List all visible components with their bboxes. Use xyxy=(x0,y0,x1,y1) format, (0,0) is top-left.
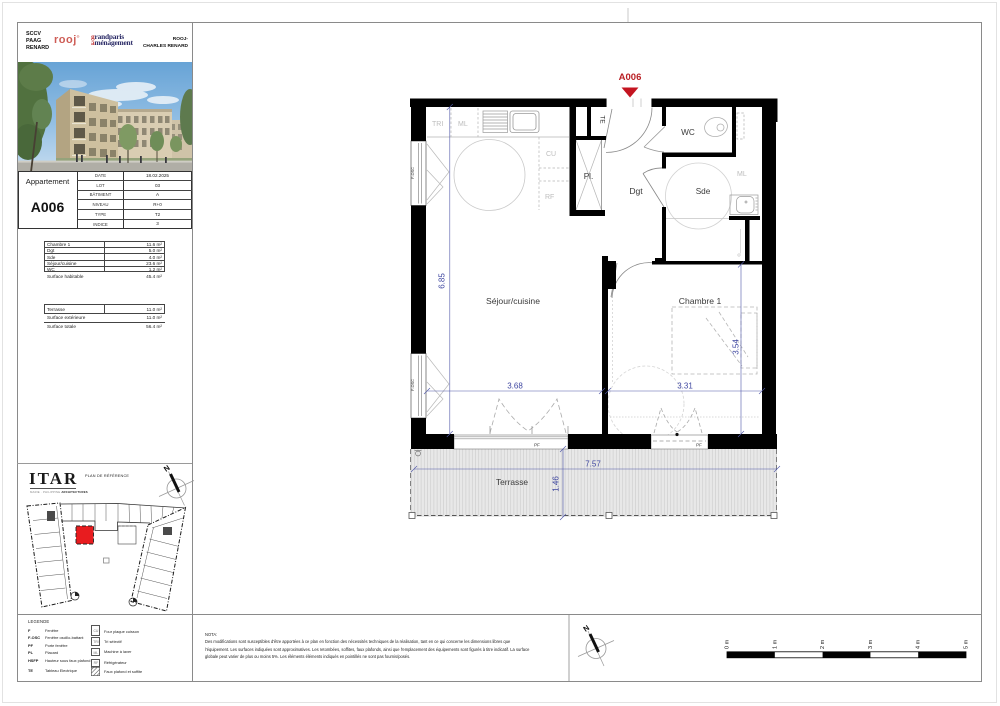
svg-text:CU: CU xyxy=(546,151,556,158)
svg-text:4 m: 4 m xyxy=(916,639,922,649)
svg-text:WC: WC xyxy=(681,128,695,137)
svg-text:Chambre 1: Chambre 1 xyxy=(679,296,722,306)
svg-text:7.57: 7.57 xyxy=(585,460,601,469)
svg-text:A006: A006 xyxy=(619,72,642,83)
svg-text:1.46: 1.46 xyxy=(552,476,561,492)
svg-text:3.31: 3.31 xyxy=(677,382,693,391)
svg-text:0 m: 0 m xyxy=(725,639,731,649)
svg-text:Séjour/cuisine: Séjour/cuisine xyxy=(486,296,540,306)
svg-text:N: N xyxy=(162,463,172,473)
svg-text:PF: PF xyxy=(696,443,702,448)
svg-text:6.85: 6.85 xyxy=(438,273,447,289)
svg-text:TRI: TRI xyxy=(432,121,443,128)
svg-text:Terrasse: Terrasse xyxy=(496,477,528,487)
svg-text:N: N xyxy=(581,623,591,633)
svg-text:F-OSC: F-OSC xyxy=(411,379,415,391)
svg-text:TE: TE xyxy=(599,115,606,124)
svg-text:3.54: 3.54 xyxy=(732,339,741,355)
svg-text:3 m: 3 m xyxy=(868,639,874,649)
svg-text:ML: ML xyxy=(737,171,747,178)
svg-text:PF: PF xyxy=(534,443,540,448)
svg-text:1 m: 1 m xyxy=(772,639,778,649)
svg-text:F-OSC: F-OSC xyxy=(411,167,415,179)
svg-text:2 m: 2 m xyxy=(820,639,826,649)
svg-text:5 m: 5 m xyxy=(964,639,970,649)
svg-text:Sde: Sde xyxy=(696,187,711,196)
svg-text:RF: RF xyxy=(545,194,554,201)
svg-text:Pl.: Pl. xyxy=(584,172,594,181)
svg-text:ML: ML xyxy=(458,121,468,128)
svg-text:Dgt: Dgt xyxy=(629,186,643,196)
svg-text:3.68: 3.68 xyxy=(507,382,523,391)
